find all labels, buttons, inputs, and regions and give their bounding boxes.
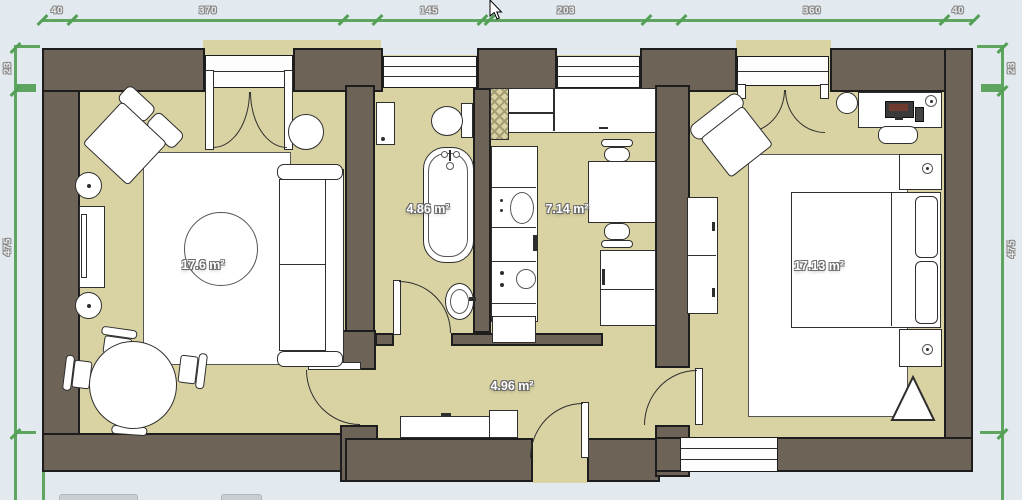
pillow: [915, 261, 938, 324]
pillow: [915, 196, 938, 258]
wardrobe[interactable]: [687, 197, 718, 314]
living-round-rug[interactable]: [184, 212, 258, 286]
sofa-armrest: [277, 351, 343, 367]
sink-tap: [469, 297, 476, 301]
toilet-bowl[interactable]: [431, 106, 463, 136]
bedroom-stool[interactable]: [836, 92, 858, 114]
wall-living-bathroom[interactable]: [345, 85, 375, 368]
kitchen-top-counter[interactable]: [508, 88, 656, 133]
bathroom-area-label: 4.86 m²: [406, 202, 449, 216]
living-area-label: 17.6 m²: [181, 258, 224, 272]
wall-bottom-living[interactable]: [42, 433, 345, 472]
nightstand-bottom[interactable]: [899, 329, 942, 367]
wall-bottom-vestibule-right[interactable]: [587, 438, 660, 482]
dining-chair-right[interactable]: [176, 350, 208, 389]
wardrobe-handle: [712, 222, 715, 231]
dim-right-475: 475: [1007, 240, 1018, 258]
dim-top-40-left: 40: [51, 6, 63, 17]
monitor-stand: [895, 117, 903, 120]
desk[interactable]: [858, 92, 942, 128]
sofa-cushion: [279, 179, 326, 266]
oven-handle: [533, 235, 537, 251]
sofa-armrest: [277, 164, 343, 180]
wall-top-bath-kitchen[interactable]: [477, 48, 557, 92]
dim-top-370: 370: [199, 6, 217, 17]
bathroom-window[interactable]: [383, 56, 477, 88]
tv-screen[interactable]: [81, 214, 87, 278]
wardrobe-handle: [712, 288, 715, 297]
wall-bathroom-bottom-stub[interactable]: [375, 333, 394, 346]
nightstand-top[interactable]: [899, 154, 942, 190]
cabinet-handle: [602, 269, 605, 285]
living-side-table[interactable]: [288, 114, 324, 150]
floorplan-canvas: 40 370 145 203 360 40 23 475 23 475: [0, 0, 1022, 500]
bathtub-tap-knob: [453, 151, 460, 158]
dim-top-145: 145: [420, 6, 438, 17]
sofa-cushion: [279, 264, 326, 351]
kitchen-chair-bottom[interactable]: [601, 221, 633, 248]
kitchen-window[interactable]: [557, 56, 640, 88]
computer-monitor: [885, 101, 914, 118]
hall-bench[interactable]: [400, 416, 491, 438]
dim-top-360: 360: [803, 6, 821, 17]
plant-triangle[interactable]: [888, 374, 938, 424]
bathroom-cabinet[interactable]: [376, 102, 395, 145]
stove-burner: [516, 269, 536, 289]
living-stool-bottom[interactable]: [75, 292, 102, 319]
sofa[interactable]: [277, 164, 345, 369]
kitchen-chair-top[interactable]: [601, 139, 633, 162]
living-balcony-door[interactable]: [205, 55, 293, 88]
dim-top-203: 203: [557, 6, 575, 17]
dim-left-475: 475: [3, 238, 14, 256]
mouse-cursor: [488, 0, 504, 20]
sink-basin: [450, 289, 469, 314]
bathroom-sink[interactable]: [445, 283, 474, 320]
dim-right-23: 23: [1007, 62, 1018, 74]
wall-right-exterior[interactable]: [944, 48, 973, 472]
dining-table[interactable]: [89, 341, 177, 429]
kitchen-counter-column[interactable]: [491, 146, 538, 322]
desk-lamp: [925, 95, 937, 107]
ventilation-shaft[interactable]: [490, 88, 509, 140]
kitchen-side-cabinet[interactable]: [600, 250, 656, 326]
hallway-area-label: 4.96 m²: [490, 379, 533, 393]
kitchen-table[interactable]: [588, 161, 656, 223]
wall-bottom-vestibule-left[interactable]: [345, 438, 533, 482]
living-stool-top[interactable]: [75, 172, 102, 199]
horizontal-scrollbar-thumb[interactable]: [59, 494, 138, 500]
bedroom-area-label: 17.13 m²: [794, 259, 844, 273]
kitchen-sink: [510, 192, 534, 224]
bathtub-tap-knob: [441, 151, 448, 158]
wall-left-exterior[interactable]: [42, 48, 80, 472]
kitchen-bottom-cabinet[interactable]: [492, 316, 536, 343]
bathtub-drain: [446, 162, 454, 170]
dim-left-23: 23: [3, 62, 14, 74]
hall-shoe-cabinet[interactable]: [489, 410, 518, 438]
desk-chair[interactable]: [878, 126, 918, 144]
desk-phone: [915, 107, 924, 122]
kitchen-area-label: 7.14 m²: [545, 202, 588, 216]
bedroom-window[interactable]: [680, 437, 778, 472]
horizontal-scrollbar-thumb-2[interactable]: [221, 494, 262, 500]
dim-top-40-right: 40: [952, 6, 964, 17]
sofa-back: [324, 169, 344, 363]
bedroom-balcony-door[interactable]: [737, 56, 829, 86]
hall-bench-handle: [441, 413, 451, 416]
